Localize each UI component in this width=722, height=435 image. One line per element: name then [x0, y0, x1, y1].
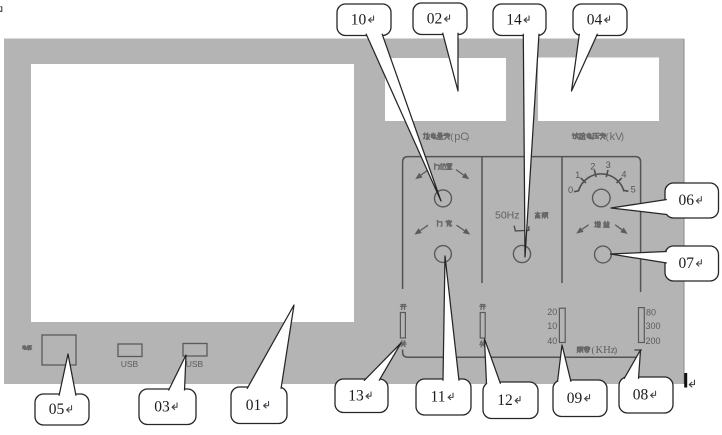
svg-text:50Hz: 50Hz: [495, 210, 520, 222]
svg-text:05: 05: [49, 401, 65, 418]
svg-text:80: 80: [646, 307, 656, 317]
svg-text:02: 02: [427, 10, 443, 27]
svg-text:06: 06: [678, 192, 694, 209]
svg-text:(: (: [450, 132, 453, 142]
svg-text:03: 03: [154, 398, 170, 415]
svg-text:08: 08: [633, 387, 649, 404]
svg-text:20: 20: [547, 307, 557, 317]
svg-text:USB: USB: [186, 359, 204, 369]
svg-text:KHz: KHz: [596, 345, 616, 356]
svg-text:): ): [621, 132, 624, 142]
svg-text:1: 1: [575, 170, 580, 180]
svg-text:09: 09: [567, 390, 583, 407]
svg-text:10: 10: [547, 321, 557, 331]
svg-text:(: (: [592, 345, 595, 356]
svg-text:300: 300: [646, 321, 661, 331]
svg-text:3: 3: [606, 160, 611, 170]
svg-text:10: 10: [351, 11, 367, 28]
svg-text:): ): [466, 132, 469, 142]
svg-text:13: 13: [348, 387, 364, 404]
svg-text:04: 04: [587, 11, 603, 28]
svg-text:07: 07: [678, 255, 694, 272]
svg-text:40: 40: [547, 336, 557, 346]
svg-text:14: 14: [506, 11, 522, 28]
svg-text:USB: USB: [121, 359, 139, 369]
svg-text:200: 200: [646, 336, 661, 346]
svg-text:12: 12: [497, 392, 513, 409]
svg-text:2: 2: [590, 161, 595, 171]
svg-text:01: 01: [246, 397, 262, 414]
svg-text:11: 11: [431, 389, 446, 406]
svg-text:4: 4: [621, 169, 626, 179]
svg-text:0: 0: [568, 185, 573, 195]
svg-text:5: 5: [631, 185, 636, 195]
svg-text:(: (: [606, 132, 609, 142]
svg-text:): ): [614, 345, 617, 356]
